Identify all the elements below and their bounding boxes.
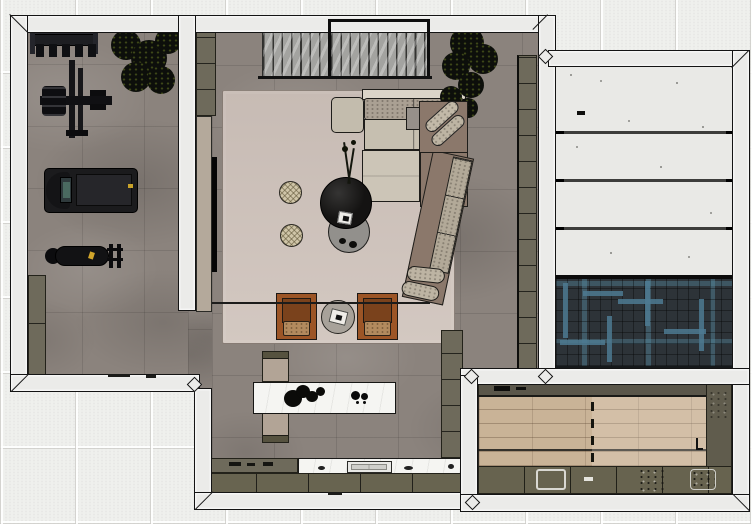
plant-foliage xyxy=(458,72,484,98)
living-shelving-strip xyxy=(517,55,537,370)
wall-tick xyxy=(146,375,156,378)
wall-divider-gym-living xyxy=(178,15,196,311)
tray-item xyxy=(335,314,342,320)
herringbone-plank xyxy=(607,316,612,362)
tv xyxy=(212,157,217,272)
rec-sink-outline xyxy=(536,469,566,490)
dumbbell xyxy=(88,44,96,57)
rec-counter-decor xyxy=(690,469,716,490)
wall-tick xyxy=(328,492,342,495)
side-table xyxy=(321,300,355,334)
vent-mark xyxy=(494,386,510,391)
hob-mark xyxy=(263,462,273,466)
wall-top-main xyxy=(10,15,548,33)
lane-corner-mark xyxy=(696,438,703,450)
side-table-tray xyxy=(329,308,349,326)
bench-crossbar xyxy=(107,248,123,251)
screen-glow xyxy=(63,182,70,198)
counter-left xyxy=(204,458,298,473)
lane-dashed-centerline xyxy=(591,398,594,462)
panel-specks xyxy=(570,74,572,76)
weight-bench xyxy=(45,242,125,270)
armchair xyxy=(276,293,317,340)
living-tall-cabinet xyxy=(196,28,216,116)
table-decor xyxy=(339,238,346,244)
plant-foliage xyxy=(468,44,498,74)
plant-leaf xyxy=(351,140,356,145)
counter-sink xyxy=(347,461,392,473)
wall-living-right xyxy=(538,15,556,375)
plant-gym xyxy=(103,26,179,96)
book-mark xyxy=(343,216,350,222)
machine-seat xyxy=(42,86,66,116)
screen-bottom-rail xyxy=(258,76,432,79)
dumbbell xyxy=(62,44,70,57)
herringbone-plank xyxy=(563,283,568,338)
island-knob xyxy=(356,401,359,404)
lane-light-half xyxy=(592,397,706,466)
stool-band xyxy=(263,435,288,442)
media-wall xyxy=(196,116,212,312)
screen-frame xyxy=(328,19,430,79)
herringbone-plank xyxy=(618,299,663,304)
wall-rightbldg-right xyxy=(732,50,750,512)
panel-seam-line xyxy=(556,179,734,182)
bench-pad xyxy=(55,246,109,266)
hob-mark xyxy=(247,463,255,466)
table-plant xyxy=(338,140,360,186)
rec-right-cabinet-decor xyxy=(708,390,730,420)
dumbbell xyxy=(49,44,57,57)
rec-counter-decor xyxy=(638,468,664,492)
floorplan-viewport[interactable] xyxy=(0,0,752,524)
stool-band xyxy=(263,352,288,359)
herringbone-plank xyxy=(664,329,706,334)
panel-handle-mark xyxy=(577,111,585,115)
wall-gym-bottom xyxy=(10,374,200,392)
lounge-chair xyxy=(419,101,468,153)
gym-storage-cabinet xyxy=(28,275,46,377)
island-knob xyxy=(363,401,366,404)
island-decor-bowl xyxy=(280,384,330,410)
rec-counter-mark xyxy=(584,477,593,481)
hob-mark xyxy=(229,462,241,466)
decor-blob xyxy=(316,387,325,396)
counter-item xyxy=(318,466,325,470)
dumbbell xyxy=(36,44,44,57)
panel-seam-line xyxy=(556,131,734,134)
pouf xyxy=(280,224,303,247)
wall-tick xyxy=(108,374,130,377)
island-burner xyxy=(351,391,360,400)
wall-recroom-left xyxy=(460,375,478,512)
dumbbell-rack xyxy=(30,30,98,57)
treadmill-screen xyxy=(60,177,72,203)
machine-foot xyxy=(66,130,88,136)
dumbbell xyxy=(75,44,83,57)
pouf xyxy=(279,181,302,204)
wall-rightbldg-top xyxy=(548,50,750,67)
herringbone-plank xyxy=(699,299,704,351)
plant-foliage xyxy=(147,66,175,94)
island-stool xyxy=(262,351,289,382)
herringbone-plank xyxy=(583,291,623,296)
sofa-armrest-left xyxy=(331,97,364,133)
armchair xyxy=(357,293,398,340)
island-stool xyxy=(262,413,289,443)
herringbone-plank xyxy=(560,340,605,345)
rack-post xyxy=(30,30,35,54)
machine-pad xyxy=(90,104,106,110)
slatted-screen-left xyxy=(262,28,330,77)
lower-cabinets xyxy=(204,473,465,494)
plant-leaf xyxy=(342,146,348,152)
sink-basin xyxy=(351,464,387,470)
treadmill-belt xyxy=(76,174,132,206)
wall-left-main xyxy=(10,15,28,392)
treadmill xyxy=(44,168,138,213)
section-cut-line xyxy=(212,302,430,304)
counter-item xyxy=(404,466,413,470)
wall-bottom-right xyxy=(460,494,750,512)
panel-room-floor xyxy=(556,60,734,280)
panel-seam-line xyxy=(556,227,734,230)
bench-crossbar xyxy=(107,258,123,261)
treadmill-logo xyxy=(128,184,133,188)
vent-mark xyxy=(516,387,526,390)
counter-item xyxy=(448,464,454,469)
wall-mid-horizontal xyxy=(460,368,750,385)
island-burner xyxy=(361,393,368,400)
table-book xyxy=(337,211,353,225)
table-decor xyxy=(349,241,357,248)
